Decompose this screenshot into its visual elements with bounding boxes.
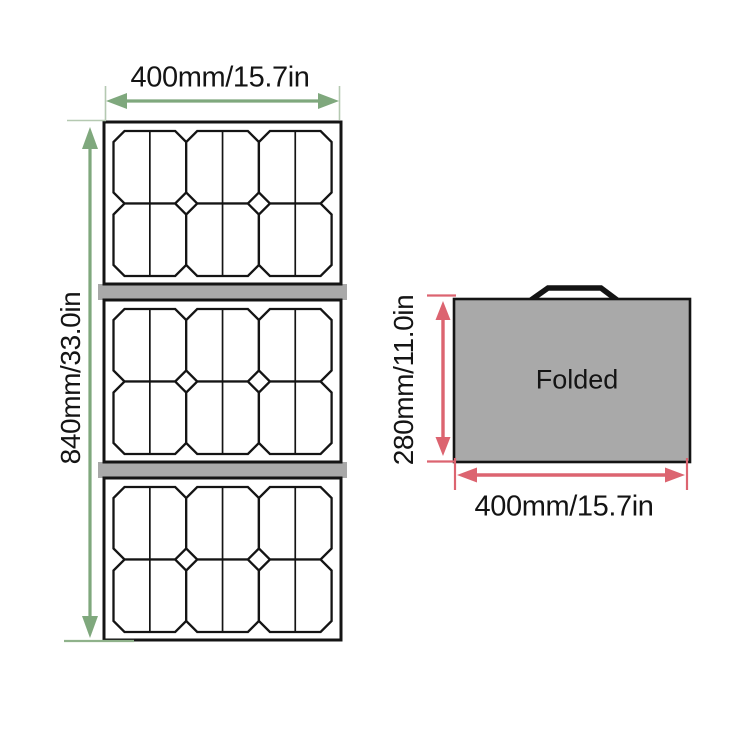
panel-section-3 [104,478,341,640]
unfolded-height-label: 840mm/33.0in [55,292,87,465]
hinge-strip [98,284,347,300]
folded-name-label: Folded [536,365,619,396]
diagram-canvas: 400mm/15.7in 840mm/33.0in 280mm/11.0in F… [0,0,750,750]
folded-height-dimension-arrow [427,296,456,462]
unfolded-width-label: 400mm/15.7in [131,62,310,95]
diagram-shapes [0,0,750,750]
folded-width-label: 400mm/15.7in [475,491,654,524]
hinge-strip [98,462,347,478]
panel-section-1 [104,122,341,284]
panel-section-2 [104,300,341,462]
folded-height-label: 280mm/11.0in [388,295,420,466]
